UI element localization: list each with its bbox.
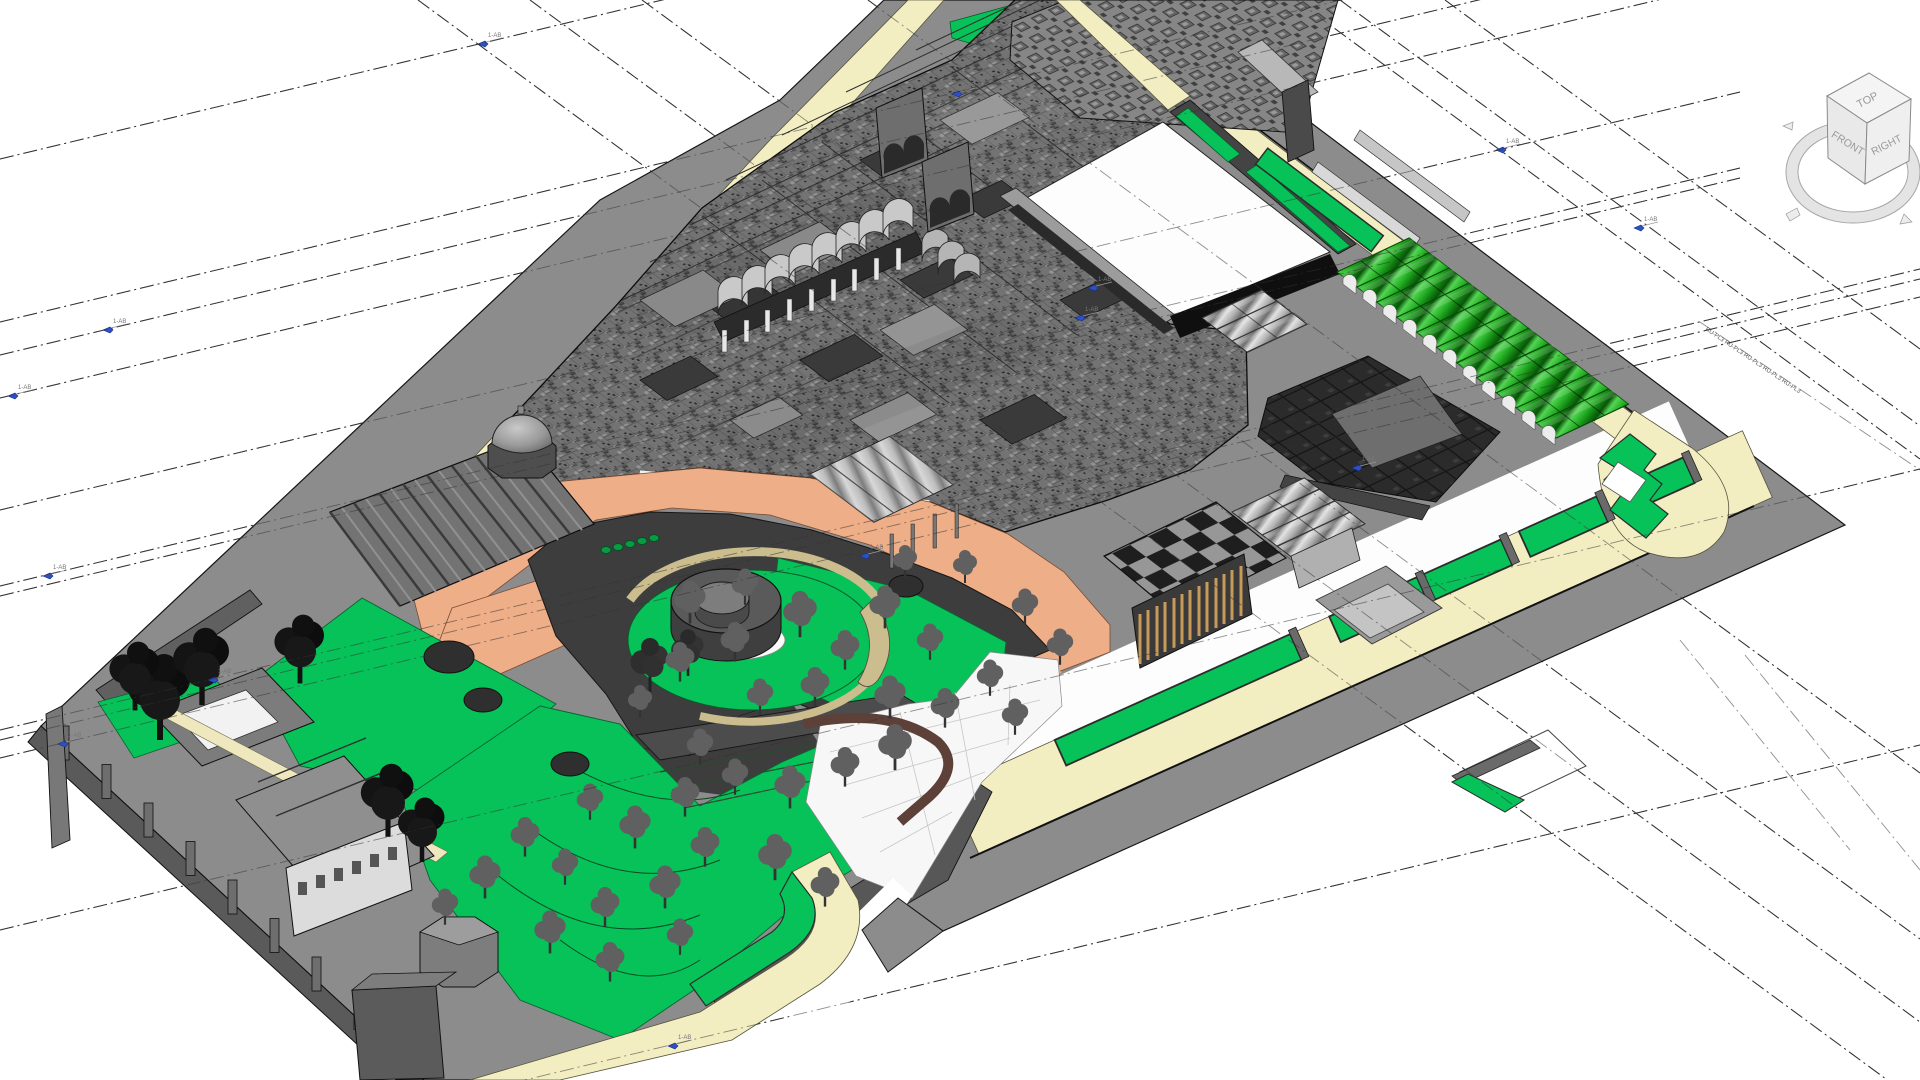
svg-text:1-AB: 1-AB [18,385,31,391]
svg-text:1-AB: 1-AB [68,733,81,739]
svg-text:1-AB: 1-AB [1362,457,1375,463]
svg-text:1-AB: 1-AB [1085,307,1098,313]
svg-text:1-AB: 1-AB [218,669,231,675]
svg-text:1-AB: 1-AB [870,545,883,551]
svg-text:1-AB: 1-AB [1506,139,1519,145]
svg-text:1-AB: 1-AB [488,33,501,39]
svg-text:1-AB: 1-AB [113,319,126,325]
svg-text:1-AB: 1-AB [1098,277,1111,283]
svg-text:1-AB: 1-AB [962,83,975,89]
svg-text:1-AB: 1-AB [1644,217,1657,223]
